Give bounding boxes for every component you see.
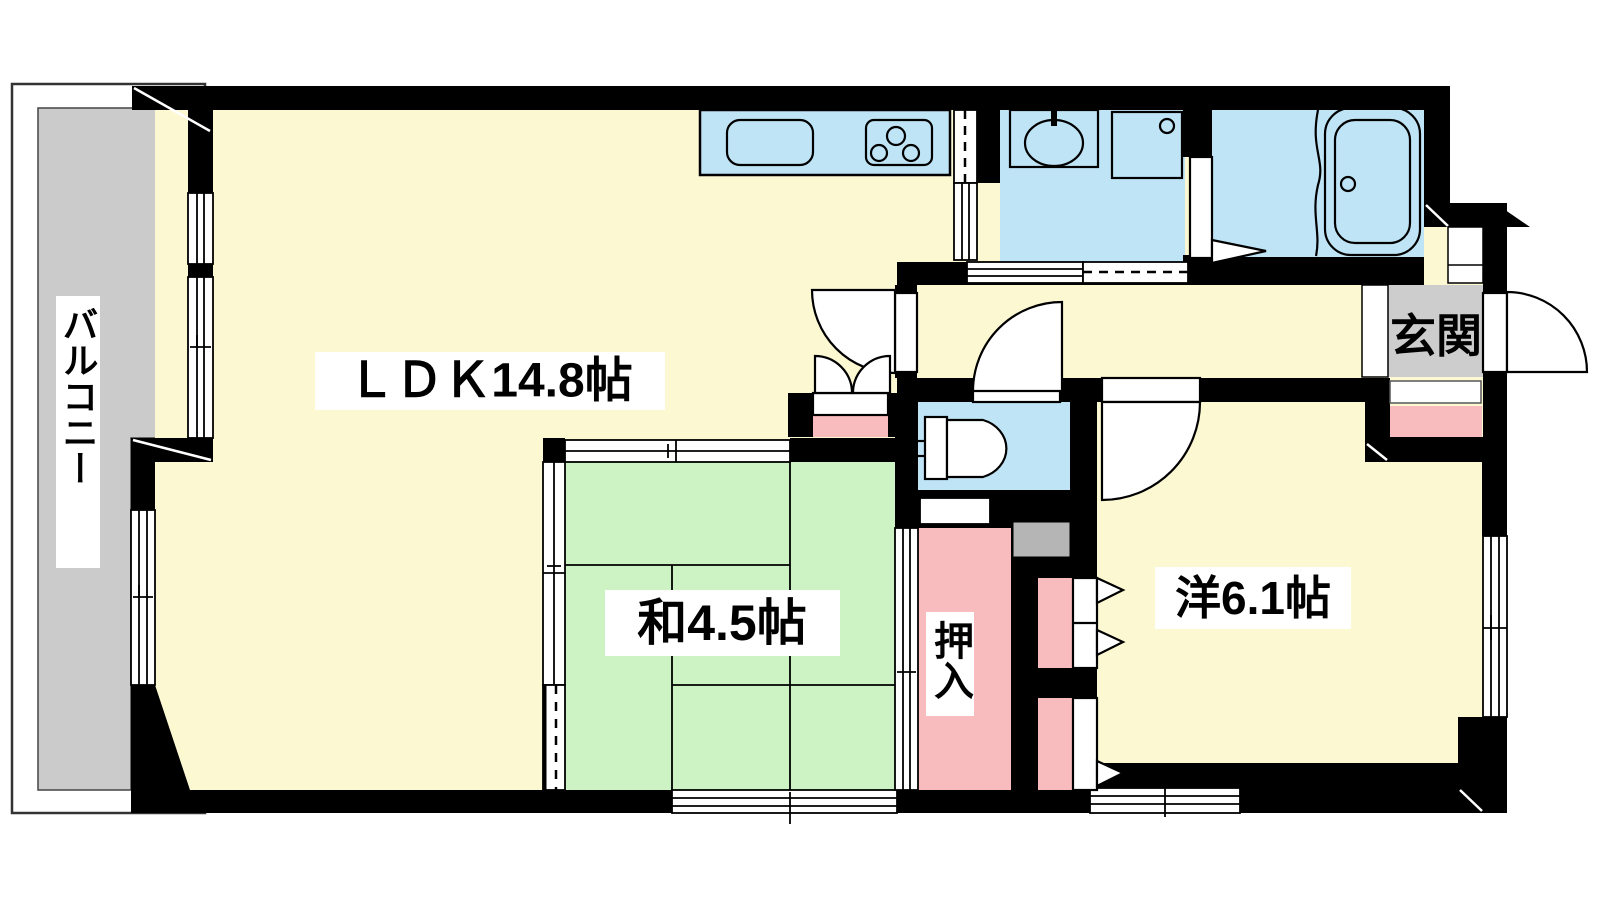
- floorplan-svg: ＬＤＫ14.8帖 和4.5帖 洋6.1帖 押入 玄関 バルコニー: [0, 0, 1600, 900]
- west-closet-lower: [1038, 698, 1073, 790]
- window-youshitsu-east: [1483, 536, 1507, 717]
- entrance-doorway: [1483, 293, 1507, 372]
- washitsu-label: 和4.5帖: [637, 595, 807, 651]
- kitchen-partition-dashed: [954, 110, 977, 183]
- balcony-label: バルコニー: [58, 306, 99, 486]
- window-ldk-balcony-door: [188, 277, 213, 438]
- washroom-side-door: [954, 183, 977, 260]
- youshitsu-label: 洋6.1帖: [1175, 572, 1331, 624]
- storage-doorway: [813, 393, 888, 415]
- washitsu-west-fusuma: [543, 462, 565, 685]
- toilet-side-opening: [920, 498, 990, 524]
- ldk-hall-doorway: [895, 293, 917, 372]
- oshiire-label: 押入: [928, 620, 974, 700]
- window-washitsu-south: [672, 790, 897, 824]
- oshiire-fusuma: [895, 528, 918, 790]
- shoe-cabinet: [1390, 381, 1481, 403]
- utility-box: [1013, 522, 1070, 557]
- floorplan-page: ＬＤＫ14.8帖 和4.5帖 洋6.1帖 押入 玄関 バルコニー: [0, 0, 1600, 900]
- ldk-label: ＬＤＫ14.8帖: [347, 355, 632, 408]
- bathroom-door: [1190, 157, 1212, 258]
- window-youshitsu-south: [1090, 784, 1240, 817]
- window-ldk-lower: [131, 510, 155, 685]
- washroom-bottom-door: [967, 262, 1188, 283]
- ldk-storage: [813, 415, 888, 437]
- toilet: [917, 417, 1006, 479]
- meter-niche: [1448, 227, 1483, 283]
- genkan-label: 玄関: [1390, 310, 1482, 362]
- genkan-storage: [1390, 406, 1482, 437]
- washitsu-west-open-boundary: [543, 685, 565, 790]
- west-closet-upper: [1038, 578, 1073, 668]
- west-closet-door-lower: [1073, 698, 1097, 790]
- washitsu-north-fusuma: [565, 440, 790, 462]
- genkan-step: [1362, 285, 1388, 377]
- window-ldk-upper: [188, 193, 213, 264]
- youshitsu-doorway: [1102, 378, 1200, 402]
